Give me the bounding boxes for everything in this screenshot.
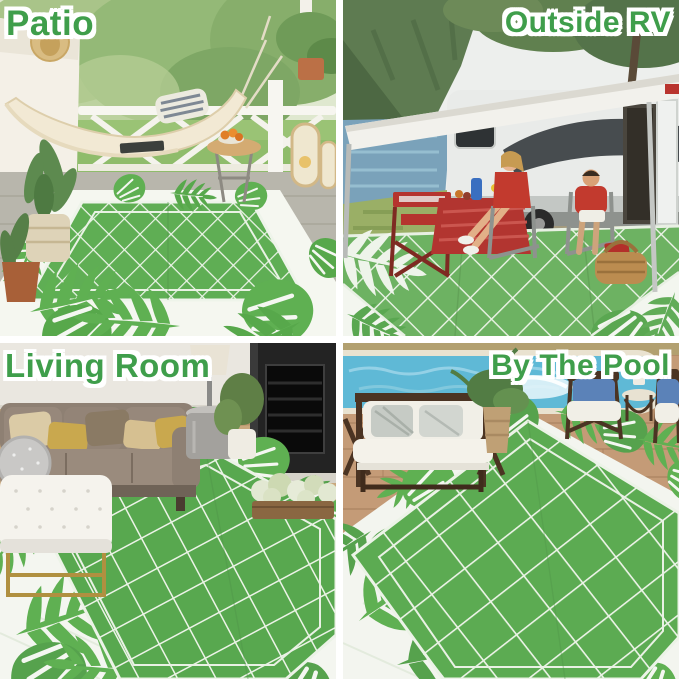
scene-label-patio: Patio bbox=[6, 6, 94, 41]
outside-rv-scene bbox=[343, 0, 679, 336]
patio-scene bbox=[0, 0, 336, 336]
product-image-collage: Patio bbox=[0, 0, 679, 679]
living-room-scene bbox=[0, 343, 336, 679]
scene-label-by-the-pool: By The Pool bbox=[491, 351, 670, 381]
by-the-pool-scene bbox=[343, 343, 679, 679]
scene-label-living-room: Living Room bbox=[5, 349, 210, 382]
photo-outside-rv: Outside RV bbox=[343, 0, 679, 336]
photo-patio: Patio bbox=[0, 0, 336, 336]
photo-by-the-pool: By The Pool bbox=[343, 343, 679, 679]
scene-label-outside-rv: Outside RV bbox=[505, 8, 671, 38]
photo-living-room: Living Room bbox=[0, 343, 336, 679]
